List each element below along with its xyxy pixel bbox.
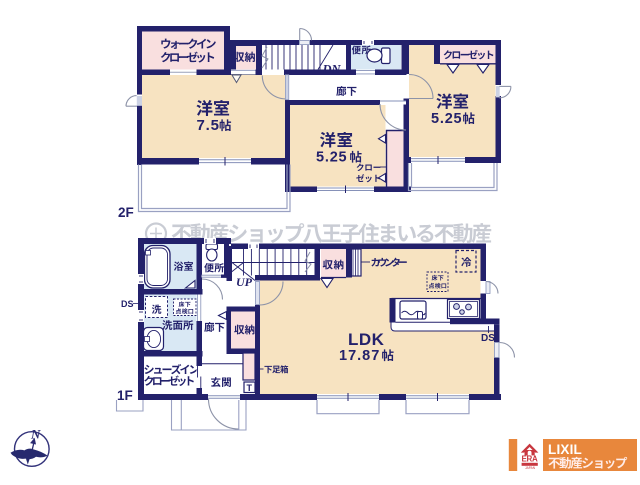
svg-text:DS: DS [481,333,495,344]
svg-text:UP: UP [236,275,253,289]
svg-text:N: N [30,427,41,442]
svg-text:17.87: 17.87 [339,348,380,364]
svg-text:5.25: 5.25 [316,150,347,166]
svg-text:7.5: 7.5 [197,117,220,134]
svg-text:1F: 1F [117,388,133,403]
svg-text:DN: DN [322,63,342,77]
svg-text:LIXIL: LIXIL [548,442,582,457]
svg-text:LDK: LDK [348,330,385,349]
svg-text:JAPAN: JAPAN [525,466,536,470]
svg-text:ERA: ERA [522,455,539,464]
svg-text:T: T [247,383,253,393]
svg-text:5.25: 5.25 [431,111,462,127]
svg-text:DS: DS [121,299,134,309]
svg-text:2F: 2F [118,205,134,220]
